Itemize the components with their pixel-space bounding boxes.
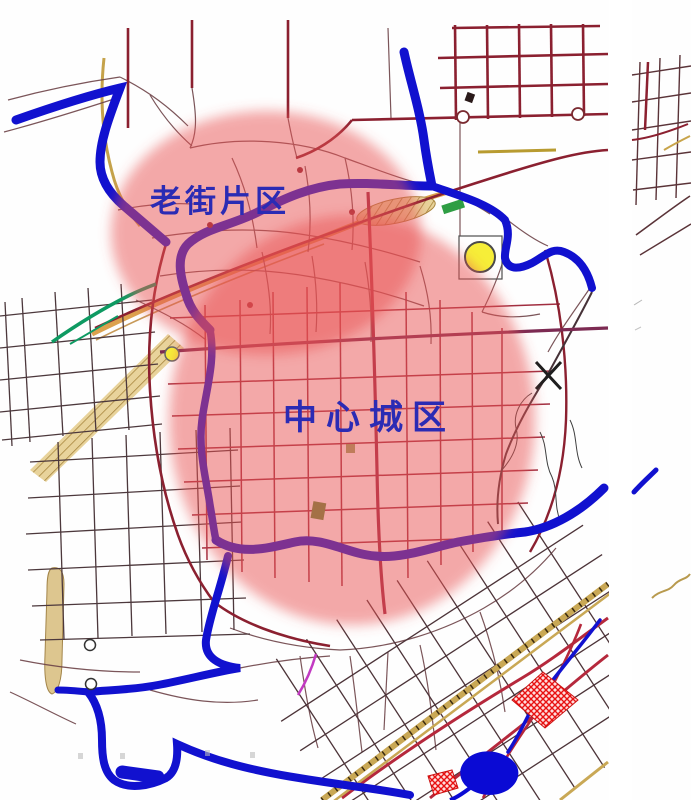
roundabout <box>572 108 584 120</box>
city-planning-map-screenshot: 老街片区 中心城区 <box>0 0 691 800</box>
map-fold-gap <box>609 0 632 800</box>
zone-label-old-street: 老街片区 <box>150 184 290 220</box>
roundabout <box>86 679 97 690</box>
zone-label-central-city: 中心城区 <box>283 398 455 438</box>
roundabout <box>85 640 96 651</box>
city-planning-map: 老街片区 中心城区 <box>0 0 691 800</box>
yellow-landmark-small <box>165 347 179 361</box>
roundabout <box>457 111 469 123</box>
